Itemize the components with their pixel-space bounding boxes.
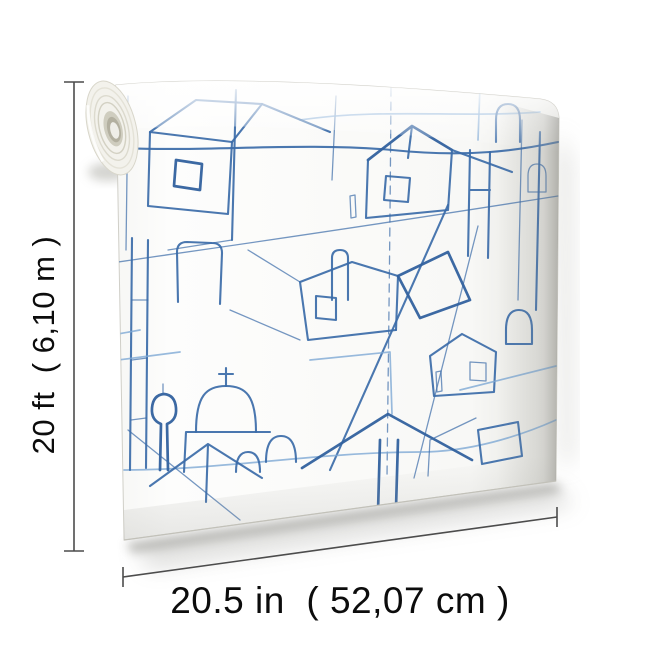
- right-curl-shade: [497, 102, 559, 489]
- height-dimension-label: 20 ft ( 6,10 m ): [26, 236, 62, 455]
- width-dimension-label: 20.5 in ( 52,07 cm ): [170, 580, 510, 622]
- height-dimension-line: [64, 82, 84, 551]
- wallpaper-sheet: [116, 81, 559, 540]
- wallpaper-roll-image: [0, 0, 650, 650]
- product-dimension-figure: 20 ft ( 6,10 m ) 20.5 in ( 52,07 cm ): [0, 0, 650, 650]
